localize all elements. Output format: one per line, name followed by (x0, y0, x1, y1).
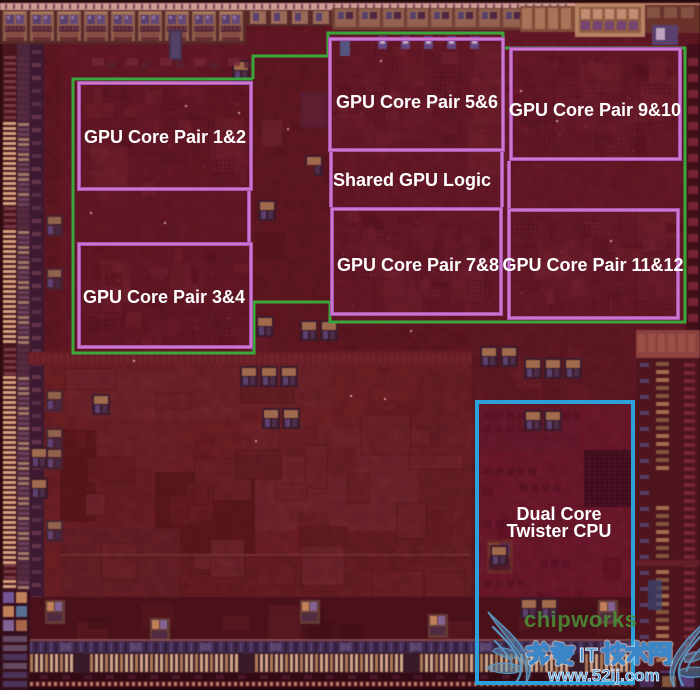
svg-text:GPU Core Pair 9&10: GPU Core Pair 9&10 (509, 100, 681, 120)
svg-text:www.52ij.com: www.52ij.com (547, 666, 660, 685)
svg-text:GPU Core Pair 5&6: GPU Core Pair 5&6 (336, 92, 498, 112)
svg-text:IT: IT (579, 645, 599, 667)
svg-text:Shared GPU Logic: Shared GPU Logic (333, 170, 491, 190)
svg-text:chipworks: chipworks (524, 607, 637, 632)
svg-text:GPU Core Pair 1&2: GPU Core Pair 1&2 (84, 127, 246, 147)
svg-text:GPU Core Pair 11&12: GPU Core Pair 11&12 (502, 255, 683, 275)
svg-text:Twister CPU: Twister CPU (507, 521, 612, 541)
svg-text:GPU Core Pair 3&4: GPU Core Pair 3&4 (83, 287, 245, 307)
svg-text:GPU Core Pair 7&8: GPU Core Pair 7&8 (337, 255, 499, 275)
